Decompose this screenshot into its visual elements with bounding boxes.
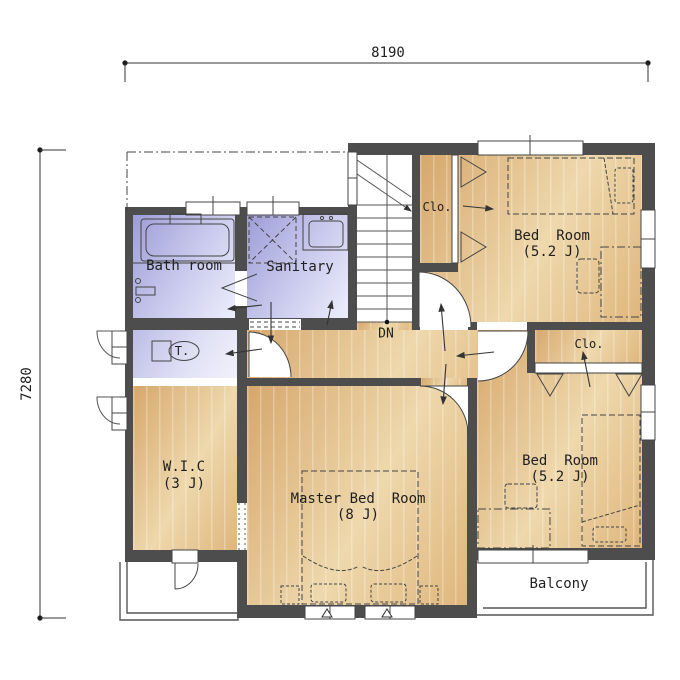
desk-top-bedroom <box>577 247 641 317</box>
wic-size: (3 J) <box>163 477 205 491</box>
stairs <box>357 155 412 324</box>
roof-outline-dashed <box>127 152 352 210</box>
bath-room-label: Bath room <box>146 259 222 273</box>
closet-top-label: Clo. <box>423 201 452 213</box>
bedroom-right-door <box>478 331 528 381</box>
windows <box>112 135 655 619</box>
master-bedroom-label: Master Bed Room <box>291 492 426 506</box>
floor-plan: 8190 7280 Bath room Sanitary Clo. Bed Ro… <box>0 0 680 680</box>
closet-top-track <box>452 155 458 263</box>
wic-label: W.I.C <box>163 460 205 474</box>
dimension-top-label: 8190 <box>371 46 405 60</box>
dimension-left-label: 7280 <box>20 367 34 401</box>
toilet-label: T. <box>175 345 189 357</box>
balcony-label: Balcony <box>529 577 588 591</box>
desk-right-bedroom <box>478 484 550 548</box>
wic-opening <box>237 503 247 550</box>
bedroom-right-label: Bed Room <box>522 454 598 468</box>
closet-right-label: Clo. <box>575 338 604 350</box>
washing-machine <box>249 217 296 263</box>
bath-door-gap <box>235 271 247 306</box>
sanitary-sliding-door <box>249 319 301 330</box>
bedroom-right-size: (5.2 J) <box>530 470 589 484</box>
toilet-door <box>249 332 291 377</box>
balcony-left-door <box>172 550 198 563</box>
bedroom-top-door <box>419 272 471 327</box>
bed-top-bedroom <box>508 158 634 214</box>
bedroom-top-label: Bed Room <box>514 229 590 243</box>
sanitary-label: Sanitary <box>266 260 333 274</box>
bedroom-top-size: (5.2 J) <box>522 245 581 259</box>
master-bedroom-size: (8 J) <box>337 508 379 522</box>
vanity-sink <box>303 214 348 250</box>
door-swings <box>172 271 528 589</box>
closet-right-track <box>535 363 642 373</box>
stairs-dn-label: DN <box>378 328 394 341</box>
balcony-left-railing <box>120 562 238 620</box>
bed-right-bedroom <box>582 415 640 546</box>
